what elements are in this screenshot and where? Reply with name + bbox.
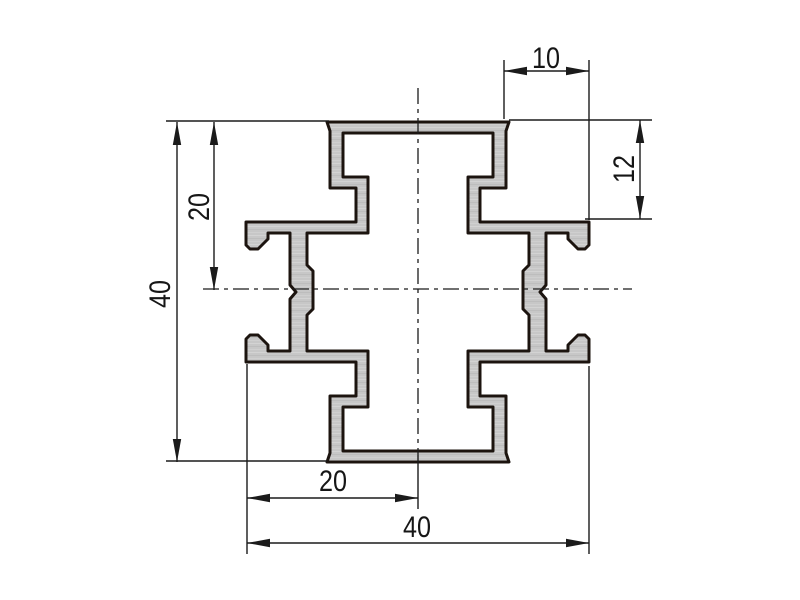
dim-label-left-total-height: 40 <box>144 280 177 308</box>
technical-drawing-canvas: 20 40 10 12 20 40 <box>0 0 800 600</box>
dim-label-right-height: 12 <box>608 155 641 183</box>
dim-label-bottom-total-width: 40 <box>403 511 431 544</box>
dim-label-top-width: 10 <box>532 42 560 75</box>
drawing-background <box>0 0 800 600</box>
dim-label-left-upper-height: 20 <box>183 193 216 221</box>
dim-label-bottom-half-width: 20 <box>319 465 347 498</box>
